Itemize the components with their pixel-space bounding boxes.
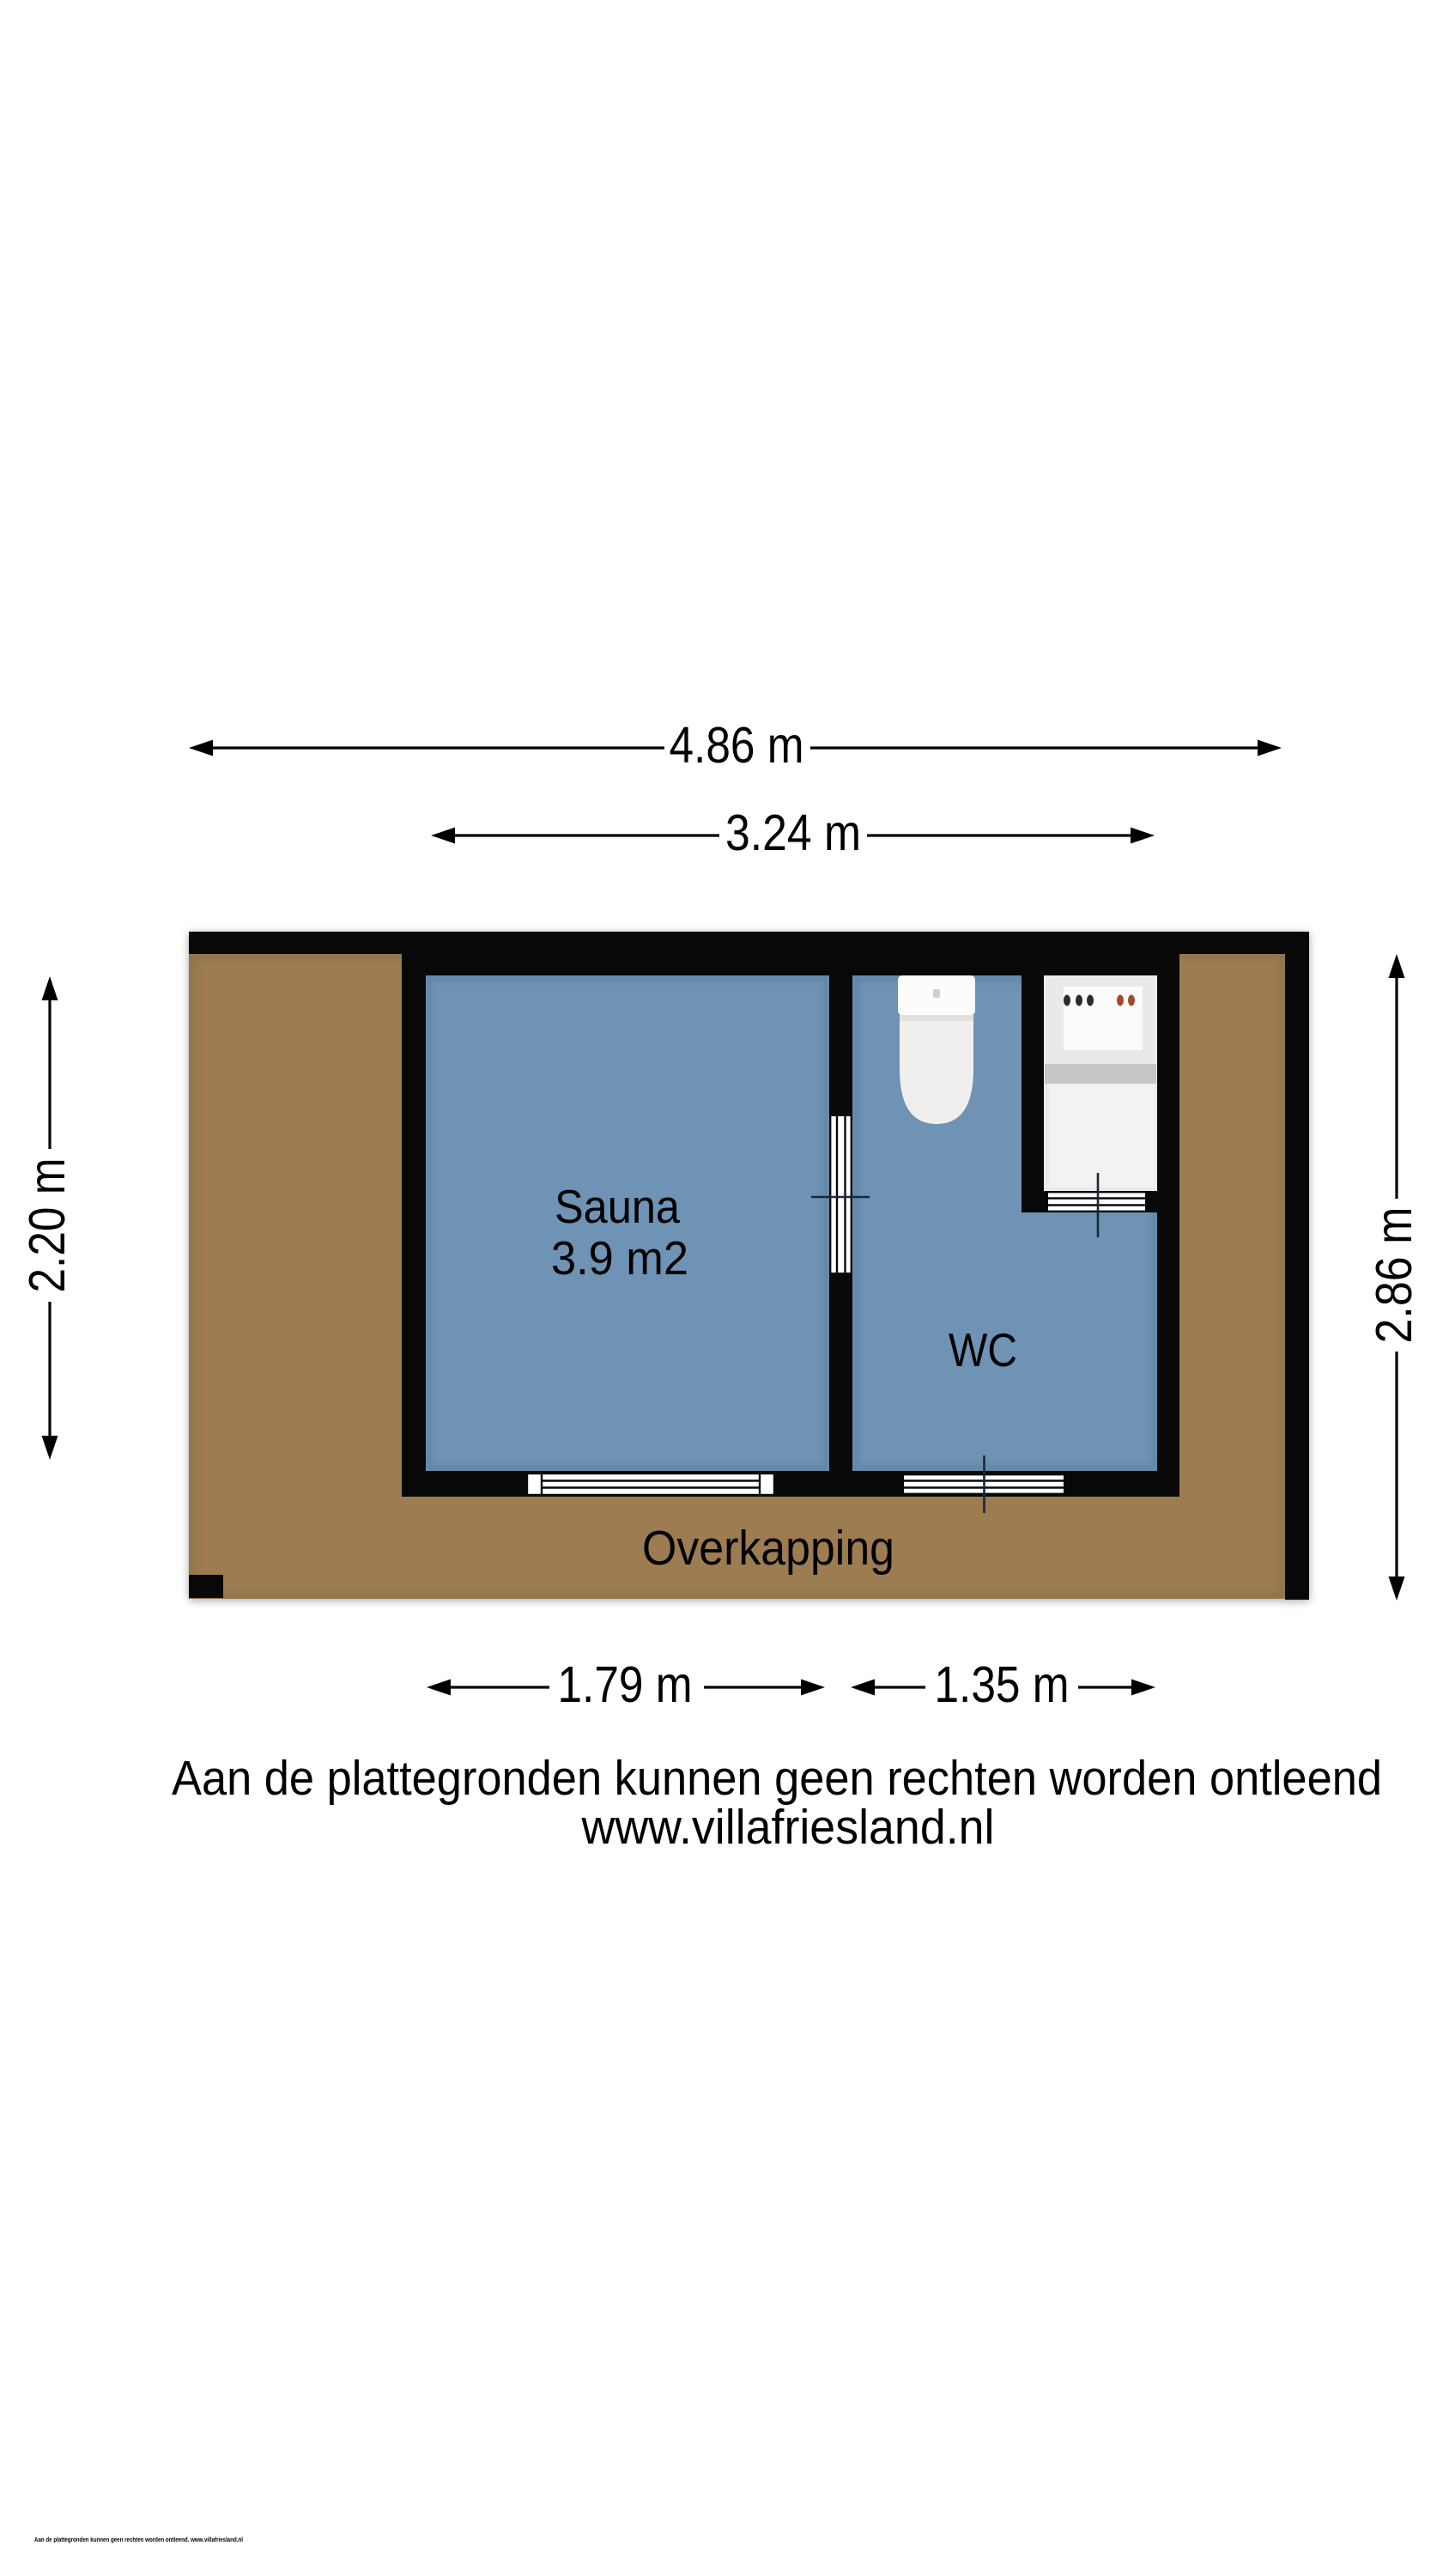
svg-text:Overkapping: Overkapping xyxy=(642,1521,894,1576)
svg-text:Sauna: Sauna xyxy=(555,1180,680,1233)
svg-text:4.86 m: 4.86 m xyxy=(670,717,804,774)
svg-text:www.villafriesland.nl: www.villafriesland.nl xyxy=(581,1800,995,1855)
svg-text:1.79 m: 1.79 m xyxy=(558,1656,693,1713)
svg-text:3.24 m: 3.24 m xyxy=(725,805,861,861)
svg-text:1.35 m: 1.35 m xyxy=(935,1656,1070,1713)
svg-text:Aan de plattegronden kunnen ge: Aan de plattegronden kunnen geen rechten… xyxy=(34,2536,243,2543)
svg-text:Aan de plattegronden kunnen ge: Aan de plattegronden kunnen geen rechten… xyxy=(172,1751,1382,1806)
svg-text:3.9 m2: 3.9 m2 xyxy=(551,1231,688,1285)
svg-text:WC: WC xyxy=(949,1323,1017,1376)
svg-text:2.86 m: 2.86 m xyxy=(1366,1207,1422,1344)
svg-text:2.20 m: 2.20 m xyxy=(19,1158,76,1293)
